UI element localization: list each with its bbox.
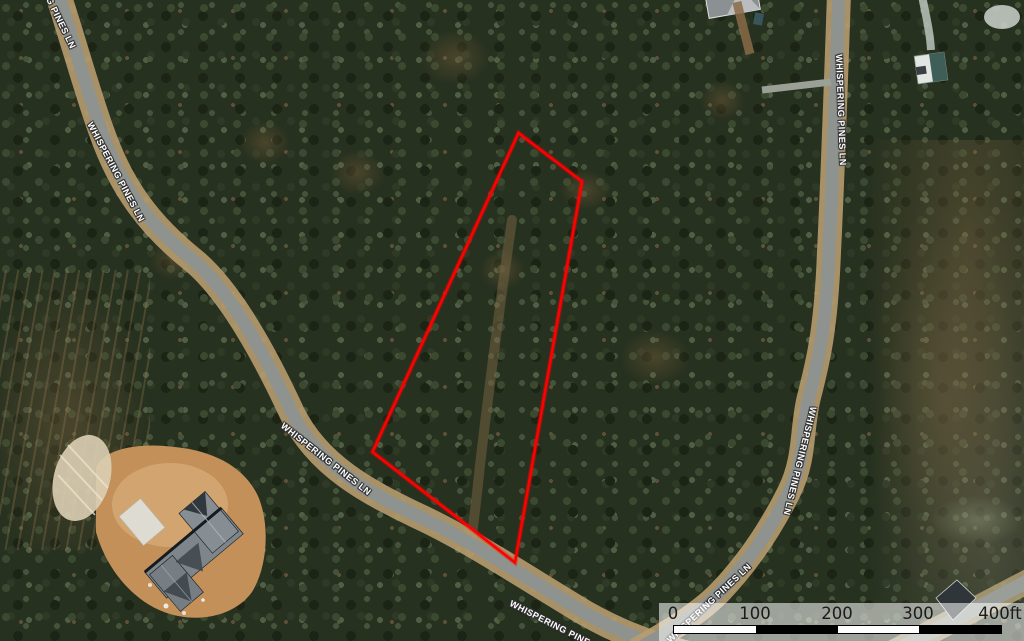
driveway-stub (762, 82, 831, 90)
scale-bar-segments (673, 625, 1002, 634)
scale-tick-100: 100 (739, 604, 771, 623)
scale-tick-300: 300 (902, 604, 934, 623)
road-whispering-pines-ln-east (636, 0, 839, 641)
map-scale-bar: 0 100 200 300 400ft (659, 603, 1024, 641)
map-graphics (0, 0, 1024, 641)
neighbor-house-top (705, 0, 764, 54)
dirt-trail (470, 220, 512, 552)
scale-tick-0: 0 (668, 604, 679, 623)
vehicle (753, 12, 764, 25)
driveway (922, 0, 931, 50)
scale-tick-400ft: 400ft (978, 604, 1021, 623)
scale-tick-200: 200 (821, 604, 853, 623)
satellite-map-viewport[interactable]: G PINES LN WHISPERING PINES LN WHISPERIN… (0, 0, 1024, 641)
neighbor-shed-top-right (914, 0, 1020, 84)
clearing-top-right (984, 5, 1020, 29)
